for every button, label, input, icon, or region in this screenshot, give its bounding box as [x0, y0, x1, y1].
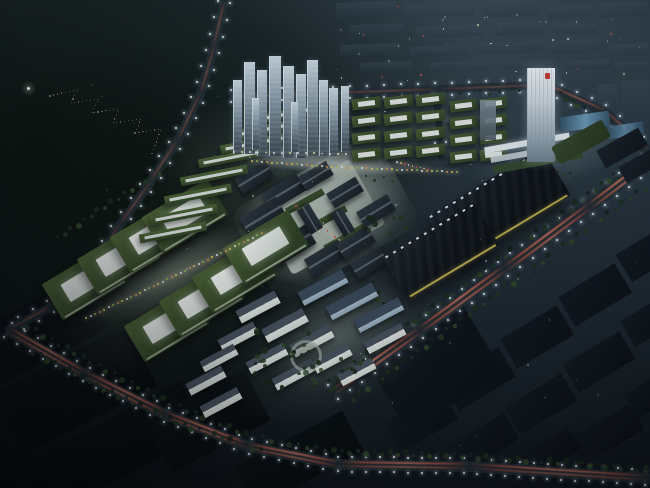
aerial-night-city-rendering — [0, 0, 650, 488]
blue-tint — [0, 0, 650, 488]
